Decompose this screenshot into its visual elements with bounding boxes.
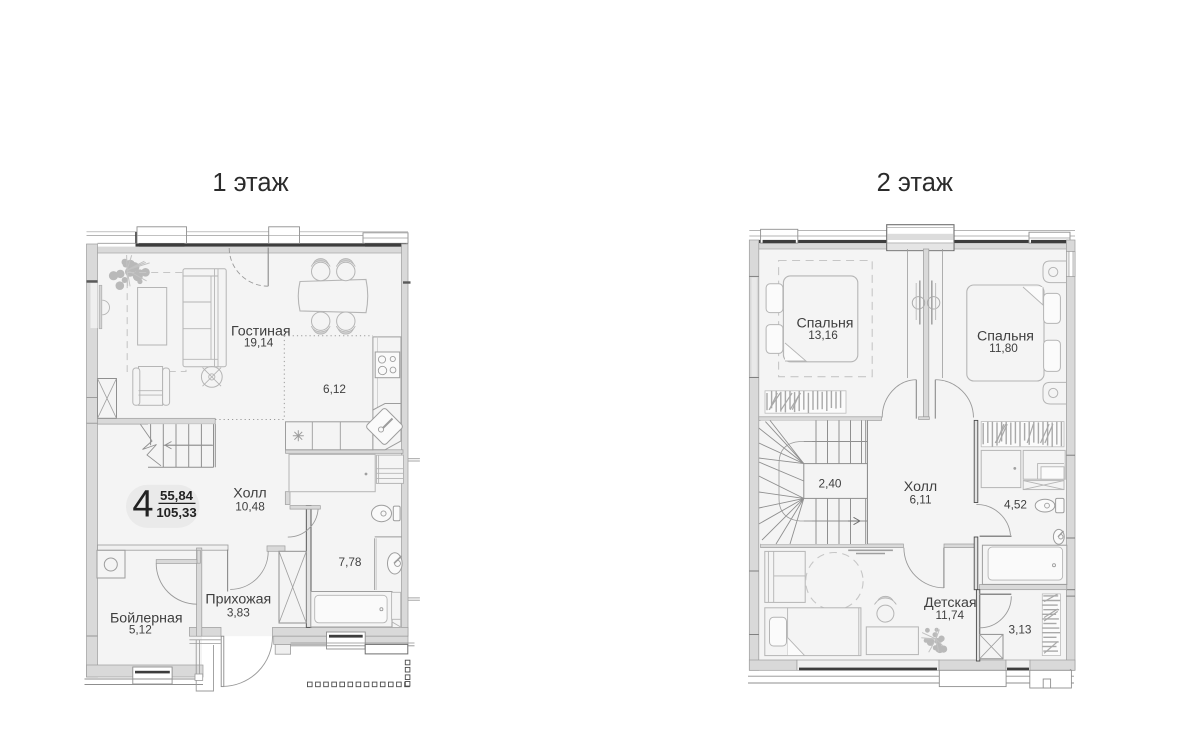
svg-text:11,80: 11,80: [989, 341, 1018, 355]
svg-text:6,12: 6,12: [323, 382, 346, 396]
svg-text:6,11: 6,11: [909, 493, 931, 507]
svg-text:13,16: 13,16: [808, 328, 838, 342]
svg-text:105,33: 105,33: [156, 505, 196, 520]
svg-text:4: 4: [132, 484, 153, 526]
svg-text:19,14: 19,14: [244, 336, 274, 350]
svg-text:2,40: 2,40: [819, 477, 842, 491]
svg-text:1 этаж: 1 этаж: [212, 169, 288, 197]
svg-text:7,78: 7,78: [339, 555, 362, 569]
svg-text:2 этаж: 2 этаж: [877, 169, 953, 197]
svg-text:10,48: 10,48: [235, 500, 265, 514]
svg-text:3,13: 3,13: [1009, 623, 1032, 637]
svg-text:55,84: 55,84: [160, 488, 194, 503]
svg-text:5,12: 5,12: [129, 623, 152, 637]
svg-text:11,74: 11,74: [935, 608, 964, 622]
svg-text:3,83: 3,83: [227, 606, 250, 620]
svg-text:4,52: 4,52: [1004, 498, 1027, 512]
